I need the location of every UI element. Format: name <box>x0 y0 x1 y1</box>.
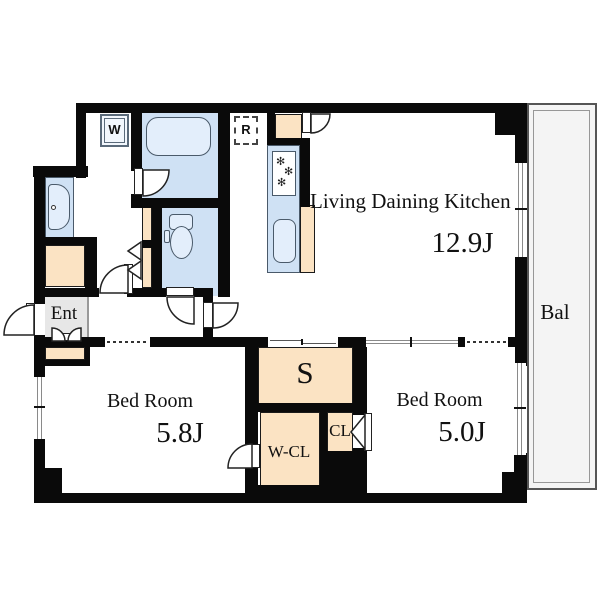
kitchen-top-cabinet <box>275 114 302 139</box>
room-label-bedroom2: Bed Room <box>372 389 507 411</box>
wall <box>300 145 310 207</box>
floor-plan: W R ✻ ✻ ✻ <box>0 0 600 600</box>
door-swing-arc-toilet <box>167 297 194 324</box>
sliding-door <box>465 337 508 347</box>
wall <box>338 337 368 347</box>
door-leaf-ldk <box>203 302 213 328</box>
wall <box>85 347 90 361</box>
wall <box>142 240 152 248</box>
room-label-bedroom1: Bed Room <box>85 390 215 412</box>
room-label-ldk: Living Daining Kitchen <box>310 190 510 213</box>
toilet-handle <box>164 230 170 243</box>
window-tick <box>514 407 526 409</box>
sliding-door <box>105 337 150 347</box>
wall <box>45 360 90 366</box>
wall <box>218 103 230 297</box>
wall <box>515 256 527 366</box>
wall <box>515 132 527 165</box>
door-leaf-toilet <box>166 287 194 296</box>
room-size-bedroom2: 5.0J <box>402 417 522 449</box>
window <box>34 377 45 439</box>
room-label-entrance: Ent <box>40 304 88 325</box>
door-leaf-entrance <box>26 303 35 335</box>
room-label-cl: CL <box>321 422 359 441</box>
wall <box>213 337 268 347</box>
door-swing-arc-ldk <box>213 303 238 328</box>
linen-shelf-upper <box>142 206 152 242</box>
window-tick <box>410 337 412 347</box>
window-tick <box>515 208 527 210</box>
wall <box>353 448 367 493</box>
refrigerator-label: R <box>241 123 250 137</box>
wall <box>327 451 353 487</box>
window <box>366 337 458 347</box>
window-tick <box>34 406 45 408</box>
room-size-ldk: 12.9J <box>420 228 505 260</box>
door-leaf-kitchen <box>302 112 311 133</box>
wall <box>508 337 520 347</box>
door-swing-arcs <box>0 0 600 600</box>
bifold-door-linen-upper <box>128 242 141 260</box>
door-leaf-bathroom <box>134 168 143 195</box>
room-label-wcl: W-CL <box>254 443 324 462</box>
toilet-bowl <box>170 226 193 259</box>
bathtub <box>146 117 211 156</box>
wall <box>245 485 367 503</box>
wall <box>152 208 162 296</box>
washing-machine: W <box>100 114 129 147</box>
door-swing-arc-kitchen <box>311 114 330 133</box>
sliding-door <box>268 337 338 347</box>
faucet-dot <box>51 205 56 210</box>
door-leaf-cl-bifold-jamb <box>364 413 372 451</box>
shoe-cabinet <box>45 245 85 287</box>
washing-machine-inner-frame <box>104 118 125 143</box>
wall <box>495 103 527 135</box>
kitchen-side-counter <box>300 205 315 273</box>
wall <box>245 403 367 412</box>
wall <box>76 103 86 178</box>
hall-side-cabinet <box>45 347 85 360</box>
room-size-bedroom1: 5.8J <box>125 418 235 450</box>
wall <box>34 177 45 304</box>
room-label-storage: S <box>282 356 328 390</box>
door-leaf-washroom <box>124 264 133 294</box>
door-leaf-shoe-cabinet <box>52 333 81 341</box>
balcony-inner-line <box>533 110 590 483</box>
window <box>515 163 527 257</box>
kitchen-sink <box>273 219 296 263</box>
stove-burner-icon: ✻ <box>277 177 286 188</box>
wall <box>245 337 258 447</box>
wall <box>353 337 367 415</box>
room-label-balcony: Bal <box>528 301 582 324</box>
refrigerator-space: R <box>234 116 258 145</box>
linen-shelf-lower <box>142 246 152 288</box>
wall <box>85 237 97 297</box>
wall <box>131 198 230 208</box>
wall <box>131 113 142 171</box>
wall <box>34 439 45 495</box>
wall <box>267 138 310 145</box>
